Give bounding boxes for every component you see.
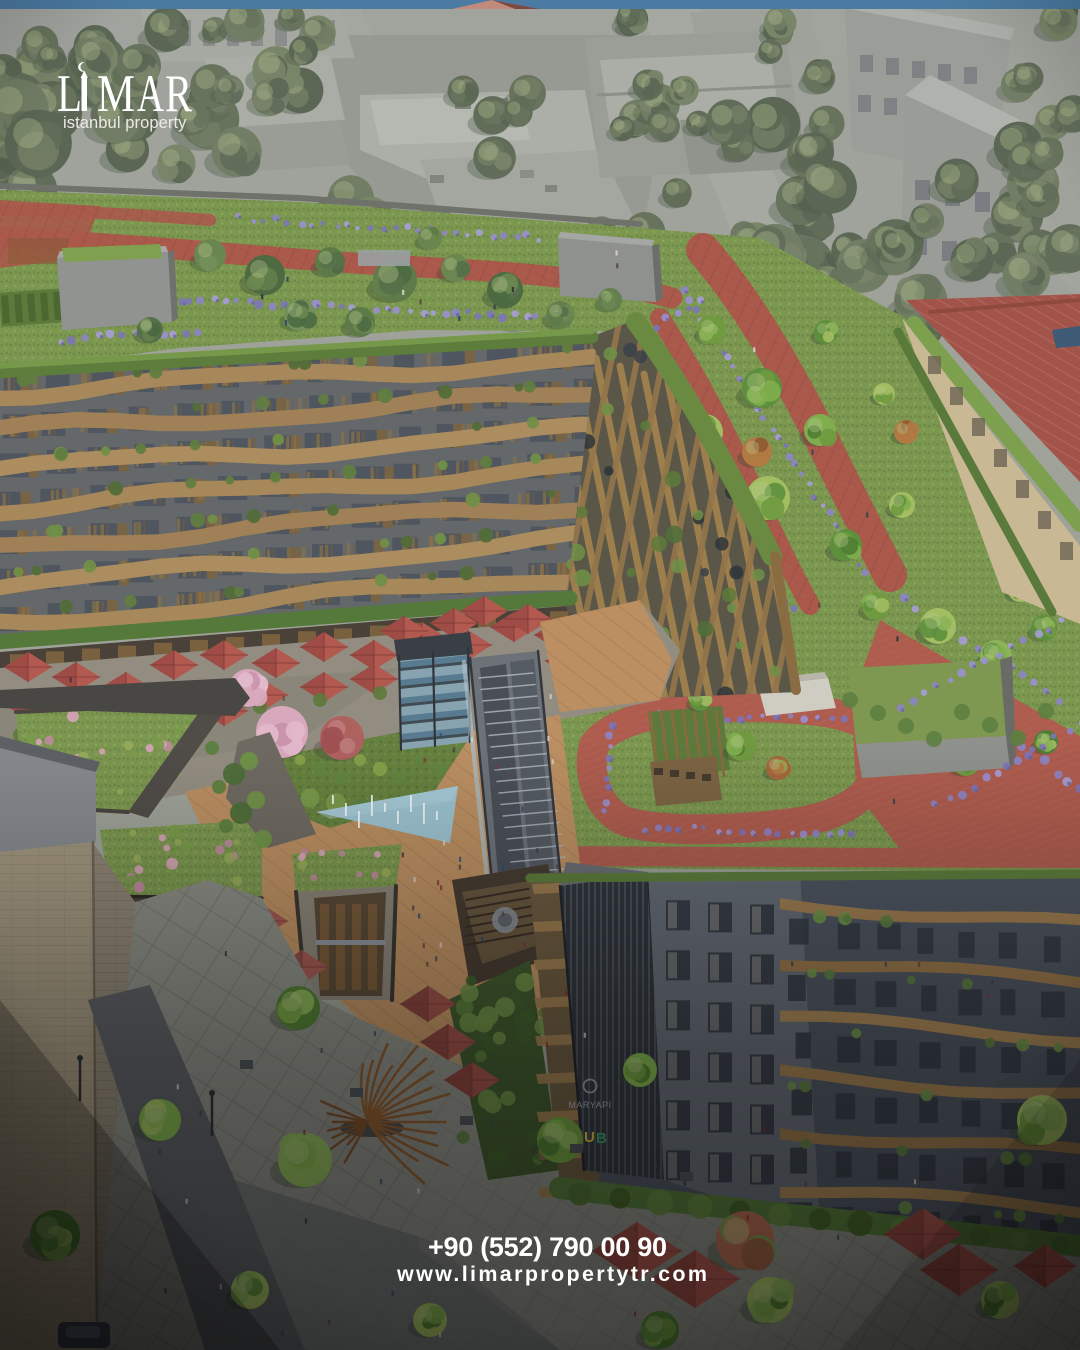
svg-text:istanbul property: istanbul property (63, 114, 187, 132)
svg-text:+90 (552) 790 00 90: +90 (552) 790 00 90 (428, 1232, 668, 1262)
svg-text:www.limarpropertytr.com: www.limarpropertytr.com (396, 1262, 707, 1286)
